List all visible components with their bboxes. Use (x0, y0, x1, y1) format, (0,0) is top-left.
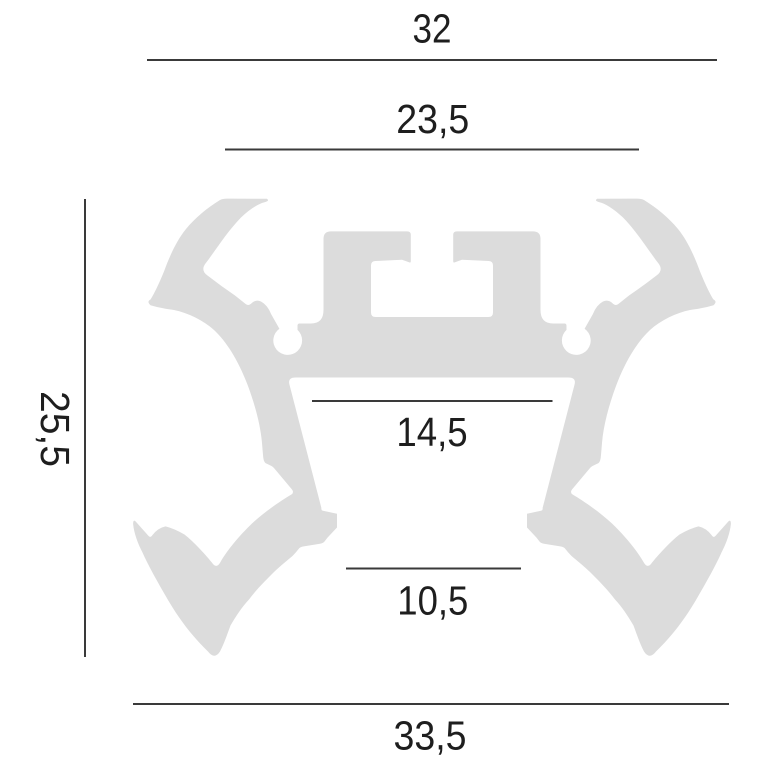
svg-text:14,5: 14,5 (396, 409, 467, 455)
svg-text:32: 32 (413, 6, 452, 52)
svg-text:10,5: 10,5 (397, 578, 468, 624)
svg-text:33,5: 33,5 (394, 712, 467, 758)
svg-text:23,5: 23,5 (396, 96, 469, 142)
svg-text:25,5: 25,5 (32, 391, 78, 467)
